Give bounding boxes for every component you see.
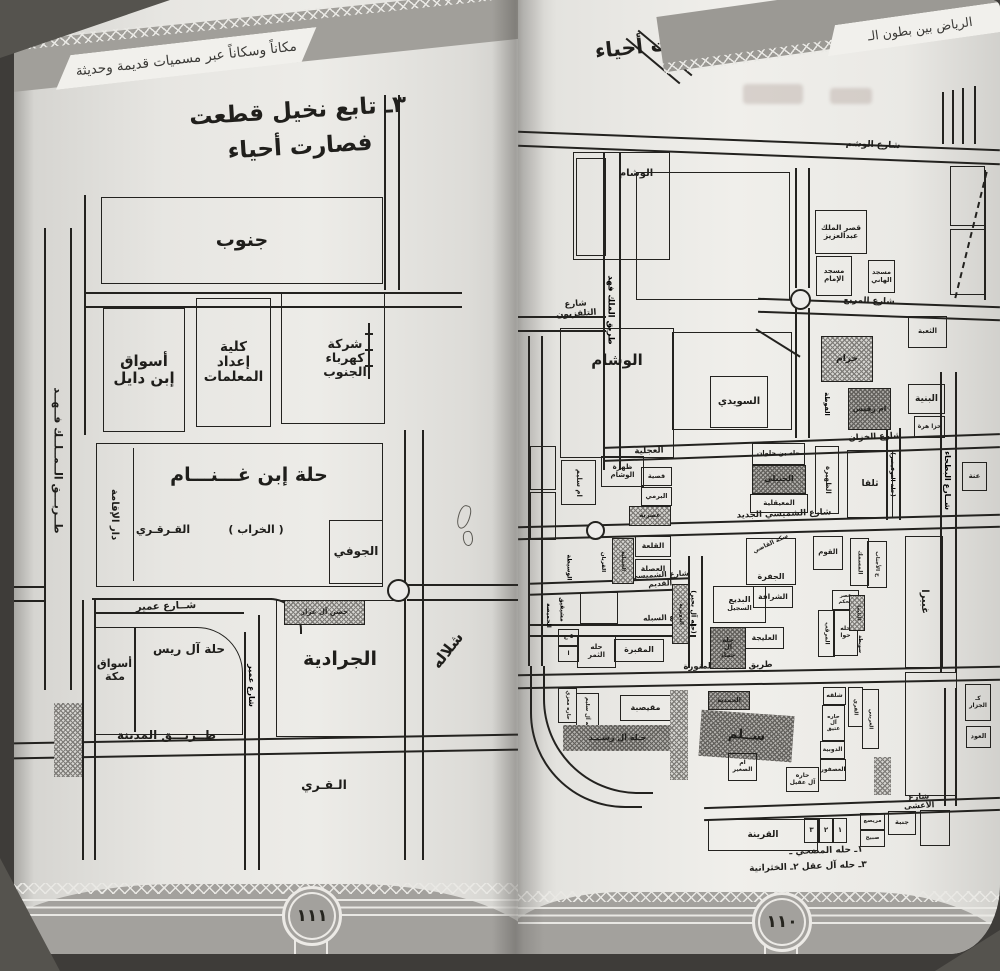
map-label: الوسيطة: [565, 554, 572, 580]
map-label: القرينة: [747, 830, 778, 840]
map-label: الثعبة: [918, 328, 937, 336]
hatched-block: [54, 703, 82, 777]
street-line: [962, 88, 964, 144]
map-label: العريني: [867, 709, 873, 729]
map-label: المسمك: [856, 550, 863, 574]
map-block-anna: عنة: [962, 462, 987, 491]
map-block-teachers-college: كلية إعداد المعلمات: [196, 298, 271, 427]
map-label: جنبة: [895, 819, 909, 826]
street-line: [974, 86, 976, 144]
map-block-muqaysaba: مقيصبة: [620, 695, 671, 721]
map-label-aswaq-makkah: أسواق مكة: [98, 658, 132, 684]
hatched-strip: [874, 757, 891, 795]
map-label: جنوب: [216, 230, 268, 251]
map-label-qari: الـقـري: [294, 778, 354, 793]
map-block-hanbaliya: الحنبلية: [612, 538, 634, 584]
map-label: مقيصبة: [631, 704, 661, 713]
map-label: خزا هرة: [918, 424, 942, 431]
page-number-right: ١١٠: [752, 892, 812, 952]
handwritten-mark: [462, 530, 474, 547]
street-label-washm: شارع الوشم: [838, 138, 908, 152]
map-block-wusham: [560, 328, 674, 458]
map-block-zahira: الظهيرة: [815, 446, 839, 514]
map-label: عصرية: [639, 512, 660, 519]
map-label: الظهيرة: [823, 466, 831, 494]
map-label: ام سليم: [575, 468, 583, 496]
map-block-number: ١: [833, 818, 847, 843]
handwritten-mark: [455, 504, 473, 530]
map-block-sharafa: الشرافة: [753, 586, 793, 608]
map-block: [580, 592, 618, 624]
street-line: [84, 292, 462, 294]
map-label: مريصع: [863, 818, 881, 824]
map-label: شركة كهرباء الجنوب: [323, 337, 367, 379]
street-line: [808, 168, 810, 288]
map-label: القلعة: [642, 542, 665, 550]
map-block: [920, 810, 950, 846]
footer-band-left: [14, 884, 518, 954]
map-block-um-ruqays: ام رقيس: [848, 388, 891, 430]
map-block-um-salim: ام سليم: [561, 460, 596, 505]
map-caption-2: ٣ـ حله آل عقل ٢ـ الخثرانية: [726, 859, 890, 875]
map-block-al-hamad: حله آل حماد: [710, 627, 746, 669]
map-label-futa: الفوطة: [820, 382, 834, 426]
street-line: [795, 168, 797, 288]
map-label: المقبرة: [624, 646, 654, 655]
map-label-ibn-ghannam: حلة إبن غـــنـــام: [134, 464, 364, 486]
map-label: البرمي: [646, 493, 668, 500]
map-label: العصفور: [820, 767, 845, 774]
map-label: ا: [567, 651, 569, 658]
map-block: [530, 446, 556, 490]
map-block-asriya: عصرية: [629, 506, 671, 526]
map-label-al-rais: حلة آل ريس: [142, 642, 236, 656]
map-block-thalqa: ثلقا: [847, 450, 893, 518]
map-block-khaza-hara: خزا هرة: [914, 416, 945, 438]
map-block-qari: القري: [848, 687, 863, 727]
map-label: الثليما: [854, 606, 860, 621]
street-bathaa: شــارع البطحاء: [938, 420, 956, 540]
roundabout: [790, 289, 811, 310]
map-label: حله آل حماد: [721, 637, 736, 659]
map-label: ١: [838, 827, 842, 835]
map-label: الحنبلي: [764, 475, 793, 484]
map-label: سويطة: [857, 635, 863, 653]
right-page: الرياض بين بطون الـ ٣ـ نخيل ومزارع قطعت …: [518, 0, 1000, 954]
street-line: [942, 92, 944, 144]
map-label: الحنبلية: [620, 551, 626, 571]
hatched-strip: [670, 690, 688, 780]
roundabout: [586, 521, 605, 540]
map-label: الجفرة: [758, 573, 785, 582]
map-label: دار الإقامة: [109, 489, 120, 540]
street-label: شارع عمير: [246, 664, 255, 707]
page-number: ١١٠: [766, 912, 797, 932]
street-line: [407, 584, 518, 586]
map-label-qurban: القربان: [597, 540, 610, 584]
map-block-binya: البنية: [908, 384, 945, 414]
street-line: [14, 749, 518, 760]
map-label-wasita: الوسيطة: [562, 544, 575, 590]
map-block-ajnab: ح الأجناب: [867, 541, 887, 588]
map-label: ح الأجناب: [874, 552, 880, 578]
map-label: القوم: [818, 549, 838, 557]
roundabout: [387, 579, 410, 602]
map-block: [950, 166, 985, 226]
map-label: سكة القاضي: [752, 533, 789, 555]
map-block-tiny: ا: [558, 646, 579, 662]
map-label: القربان: [601, 552, 607, 572]
map-block-maqbara: المقبرة: [614, 639, 664, 662]
map-label: ام الصغير: [733, 760, 753, 773]
map-block-qawm: القوم: [813, 536, 843, 570]
map-label: غبيرا: [918, 590, 929, 615]
map-label: العليجة: [752, 634, 778, 642]
map-block-muraysi: مريصع: [860, 813, 885, 830]
street-line: [808, 308, 810, 438]
map-label: مشيقيق: [559, 597, 566, 621]
street-line: [422, 430, 424, 860]
map-block-bin-halwan: حله بن حلوان: [752, 443, 805, 465]
map-block-khuzam: خزام: [821, 336, 873, 382]
map-block-hamdiya: الحمدية: [708, 691, 750, 710]
street-umair-vertical: شارع عمير: [242, 640, 260, 730]
street-label-madina-road: طــريـــق المدينة: [84, 728, 249, 742]
map-block: [576, 158, 606, 256]
map-label-qarqari: القـرقـري: [130, 524, 196, 537]
street-label: (حله آل بحير): [690, 590, 698, 633]
map-block-imam-mosque: مسجد الإمام: [816, 256, 852, 296]
map-label: حاره آل عقيل: [790, 773, 816, 786]
left-page: مكاناً وسكاناً عبر مسميات قديمة وحديثة ٣…: [14, 0, 518, 954]
map-block-thamar: حله الثمر: [577, 635, 616, 668]
map-block-qalaa: القلعة: [635, 536, 671, 557]
map-label-mushayqiq: مشيقيق: [555, 590, 570, 628]
map-block: [636, 172, 790, 300]
map-block-barami: البرمي: [641, 487, 672, 506]
page-number: ١١١: [296, 906, 327, 926]
map-label: الجوفي: [334, 545, 379, 558]
street-label-murabba: شارع المربع: [840, 295, 898, 307]
map-label: صبيح: [866, 835, 880, 841]
map-label-wusham: الوشام: [586, 352, 648, 370]
map-label: قصر الملك عبدالعزيز: [821, 224, 861, 241]
map-block-jazzar: كـ الجزار: [965, 684, 991, 721]
map-block-mosque: مسجد الهاني: [868, 260, 895, 293]
map-block-aswaq-ibn-dayil: أسواق إبن دايل: [103, 308, 185, 432]
map-block-usfur: العصفور: [820, 759, 846, 781]
map-label: الفوطة: [823, 392, 831, 416]
map-block-dar-iqama: دار الإقامة: [96, 448, 134, 581]
map-label: حله الثمر: [588, 644, 605, 660]
title-line: فصارت أحياء: [227, 129, 373, 164]
street-line: [84, 195, 86, 435]
map-block-thaaba: الثعبة: [908, 316, 947, 348]
street-line: [14, 600, 44, 602]
map-label: حاره معزي: [564, 691, 570, 720]
map-block-ghubayra: غبيرا: [905, 536, 943, 668]
map-label-kharab: ( الخراب ): [214, 524, 298, 537]
map-block-asla: العصلة: [635, 559, 671, 580]
map-block-number: ٢: [819, 818, 833, 843]
map-label: مسجد الإمام: [824, 268, 845, 284]
street-label: طــريـــق الــمــلــك فــهــد: [51, 387, 64, 533]
map-label-jaradiya: الجرادية: [284, 648, 396, 670]
map-label: المرقب: [823, 622, 830, 644]
page-number-left: ١١١: [282, 886, 342, 946]
map-label: السويدي: [718, 396, 760, 407]
book-photo: مكاناً وسكاناً عبر مسميات قديمة وحديثة ٣…: [0, 0, 1000, 971]
map-label: خزام: [836, 354, 858, 364]
map-label: العصلة: [641, 565, 666, 573]
map-label: قصية: [648, 473, 665, 480]
ink-bleed: [830, 88, 872, 104]
map-block-qasiya: قصية: [641, 467, 672, 486]
pole-symbol: [368, 323, 370, 379]
map-label: القري: [852, 699, 858, 715]
map-block-shalqa: شلقه: [823, 687, 846, 705]
map-block-jafra: سكة القاضي الجفرة: [746, 538, 796, 585]
map-block-janub: جنوب: [101, 197, 383, 284]
map-block-jawfi: الجوفي: [329, 520, 383, 584]
map-block-al-aqil: حاره آل عقيل: [786, 767, 819, 792]
map-label: ثلقا: [862, 479, 879, 489]
map-block-oud: العود: [966, 726, 991, 748]
map-label: شلقه: [826, 693, 842, 700]
map-block-um-saghir: ام الصغير: [728, 753, 757, 781]
map-label: ٢: [824, 827, 828, 835]
map-label: الدويرية: [677, 603, 683, 624]
ink-bleed: [743, 84, 803, 104]
map-label: ٥ ع: [564, 634, 574, 641]
map-block-king-abdulaziz-palace: قصر الملك عبدالعزيز: [815, 210, 867, 254]
map-block-tiny: ٥ ع: [558, 629, 579, 646]
map-label-humaysa: الحميصة: [542, 596, 555, 634]
map-block-hara-mazi: حاره معزي: [558, 688, 577, 723]
handwritten-shallala: شلاله: [419, 617, 477, 685]
map-block-aleeja: العليجة: [745, 627, 784, 649]
map-label: الحمدية: [717, 697, 741, 704]
map-block-urayni: العريني: [862, 689, 879, 749]
map-label: حـله آل رشـيـد: [589, 734, 647, 743]
street-line: [795, 308, 797, 438]
map-label: البنية: [915, 394, 938, 404]
map-block-muayqiliya: المعيقلية: [750, 494, 808, 513]
map-block-zahrat-wusham: ظهرة الوشام: [601, 456, 644, 487]
map-label: العود: [971, 733, 987, 740]
map-label: كلية إعداد المعلمات: [204, 340, 264, 385]
street-label: شــارع البطحاء: [942, 451, 951, 510]
page-title-left: ٣ـ تابع نخيل قطعت فصارت أحياء: [132, 84, 466, 175]
map-block-electricity-company: شركة كهرباء الجنوب: [281, 292, 385, 424]
map-label: مسجد الهاني: [871, 269, 891, 284]
map-label: ســلم: [727, 727, 765, 744]
map-block-al-rashid: حـله آل رشـيـد: [563, 725, 672, 751]
street-line: [952, 90, 954, 144]
map-label: ظهرة الوشام: [610, 464, 634, 480]
map-block-suwaidi: السويدي: [710, 376, 768, 428]
map-label: كـ الجزار: [969, 696, 987, 709]
map-label: السجيل: [727, 605, 751, 612]
map-block-hanbali: الحنبلي: [752, 465, 806, 494]
map-label: الحميصة: [545, 603, 552, 628]
map-block-janba: جنبة: [888, 811, 916, 835]
map-block-thulayma: الثليما: [849, 595, 865, 631]
map-block-duwayriya: الدويرية: [672, 584, 689, 644]
map-label: الشرافة: [758, 593, 788, 601]
map-label-suwayta: سويطة: [854, 631, 866, 657]
map-block: [950, 229, 985, 295]
title-line: ٣ـ تابع نخيل قطعت: [189, 91, 408, 130]
map-label: أسواق إبن دايل: [113, 353, 174, 387]
map-label: عنة: [969, 473, 981, 481]
map-label: الدوبية: [823, 747, 843, 754]
map-label: ام رقيس: [853, 405, 887, 413]
street-king-fahd-road: طــريـــق الــمــلــك فــهــد: [45, 300, 71, 620]
map-label: المعيقلية: [763, 500, 795, 508]
map-block: [905, 672, 957, 796]
street-line: [14, 586, 44, 588]
map-block-dubiya: الدوبية: [820, 741, 845, 759]
street-line: [407, 599, 518, 601]
map-block: [530, 492, 556, 540]
map-label: حله بن حلوان: [757, 450, 800, 457]
map-label: حاره آل عتيق: [823, 714, 844, 732]
map-label-ajliya: العجلية: [629, 445, 669, 456]
map-block-al-atiq: حاره آل عتيق: [822, 705, 845, 741]
